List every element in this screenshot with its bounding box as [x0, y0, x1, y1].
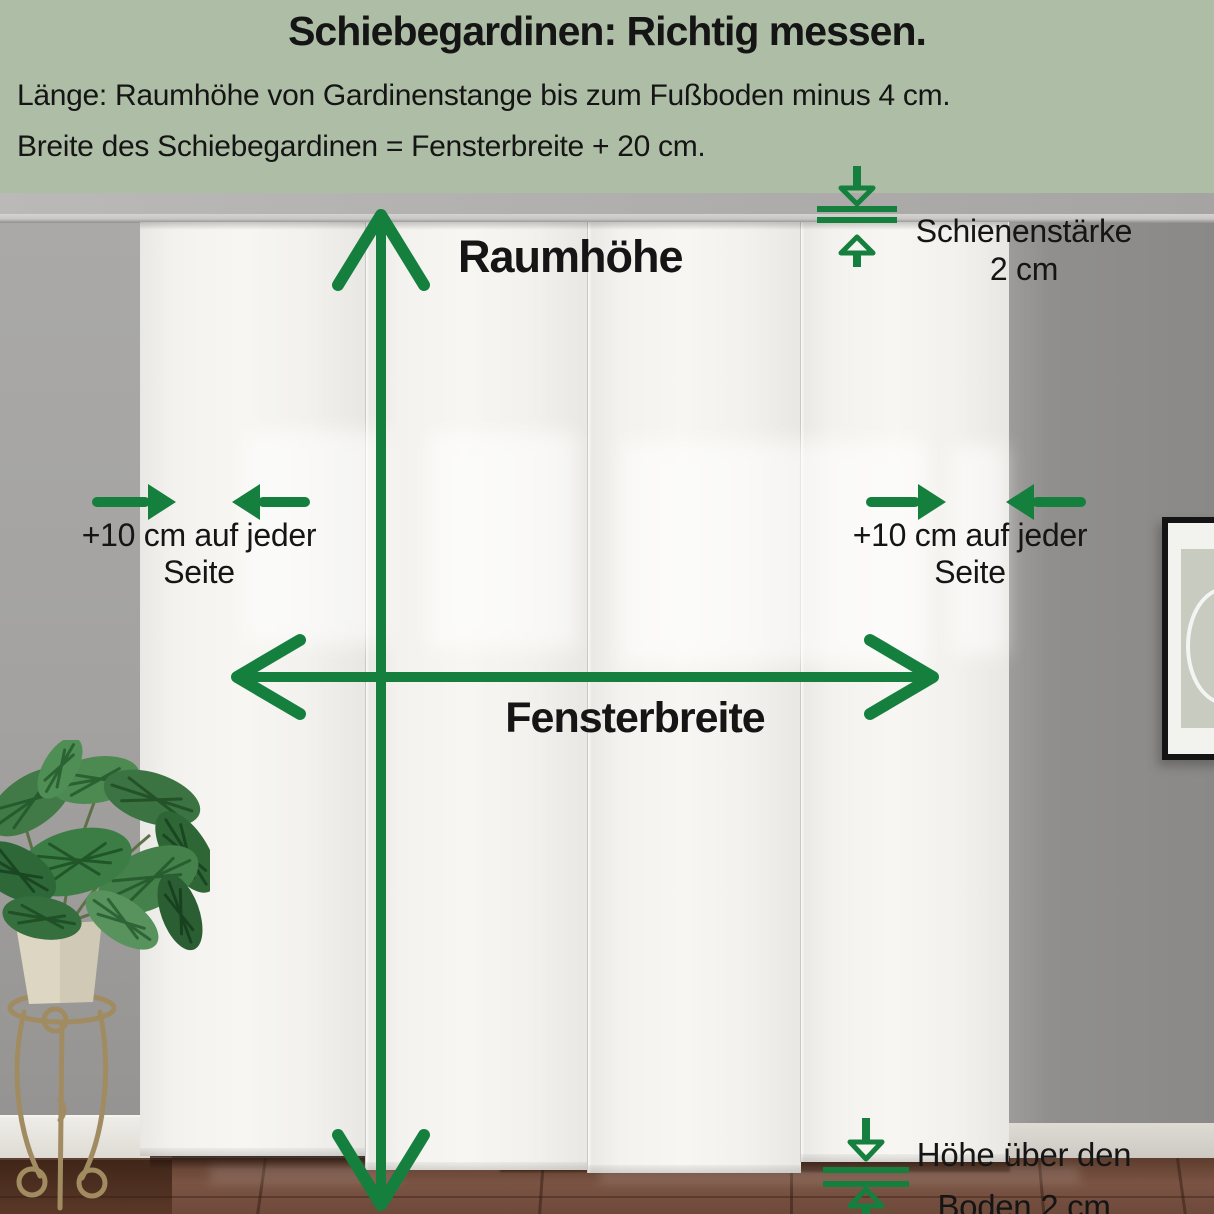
rail-thickness-label: Schienenstärke 2 cm — [901, 212, 1147, 288]
picture-frame — [1162, 517, 1214, 760]
frame-circle-motif — [1186, 587, 1214, 705]
instruction-line-2: Breite des Schiebegardinen = Fensterbrei… — [17, 130, 705, 164]
window-width-label: Fensterbreite — [448, 694, 822, 743]
side-offset-right-line-2: Seite — [838, 554, 1102, 591]
side-offset-left-line-2: Seite — [56, 554, 342, 591]
side-offset-label-right: +10 cm auf jeder Seite — [838, 517, 1102, 591]
page-title: Schiebegardinen: Richtig messen. — [0, 8, 1214, 55]
plant-stand — [10, 994, 114, 1208]
floor-clearance-line-1: Höhe über den — [903, 1129, 1145, 1181]
room-height-label: Raumhöhe — [458, 231, 683, 283]
curtain-top-shadow — [140, 222, 1008, 230]
frame-artwork — [1181, 549, 1214, 728]
wall-strip-above-rail — [0, 193, 1214, 214]
window-light-reflection — [428, 432, 578, 650]
instruction-line-1: Länge: Raumhöhe von Gardinenstange bis z… — [17, 79, 950, 113]
potted-plant — [0, 740, 210, 1214]
floor-clearance-line-2: Boden 2 cm — [903, 1181, 1145, 1214]
side-offset-label-left: +10 cm auf jeder Seite — [56, 517, 342, 591]
plant-leaves — [0, 740, 210, 961]
rail-thickness-line-2: 2 cm — [901, 250, 1147, 288]
curtain-panel-4 — [800, 222, 1009, 1162]
measurement-infographic: Schiebegardinen: Richtig messen. Länge: … — [0, 0, 1214, 1214]
side-offset-left-line-1: +10 cm auf jeder — [56, 517, 342, 554]
side-offset-right-line-1: +10 cm auf jeder — [838, 517, 1102, 554]
floor-clearance-label: Höhe über den Boden 2 cm — [903, 1129, 1145, 1214]
rail-thickness-line-1: Schienenstärke — [901, 212, 1147, 250]
